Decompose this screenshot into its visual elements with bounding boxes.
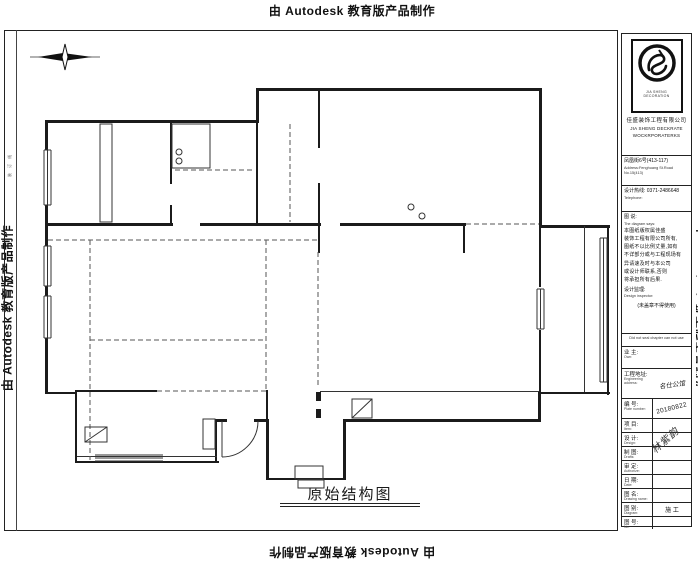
title-block-row: 图 别:Diagram:施 工 — [622, 503, 691, 517]
diagram-note-line: 不详部分或与工程现场有 — [624, 251, 689, 259]
row-value: 施 工 — [652, 503, 691, 516]
drawing-title: 原始结构图 — [270, 483, 430, 504]
title-block-inner: JIA SHENG DECORATION 佳盛装饰工程有限公司 JIA SHEN… — [621, 33, 692, 527]
row-label: 日 期:Date: — [622, 475, 652, 488]
seal-note-en: Did not seal chapter can not use — [622, 334, 691, 347]
row-label: 审 定:Authorize: — [622, 461, 652, 474]
hatch-shafts — [85, 399, 372, 442]
company-emblem: JIA SHENG DECORATION — [631, 39, 683, 113]
company-logo-icon — [635, 41, 679, 87]
title-underline — [280, 503, 420, 504]
row-label-en: Plate number: — [624, 408, 652, 412]
diagram-note-line: 装饰工程有限公司所有, — [624, 235, 689, 243]
title-block-row: 图 号:No: — [622, 517, 691, 529]
row-label-en: Drawing name: — [624, 498, 652, 502]
address-en: Address:Fenghuang St.Road No.15(413) — [624, 166, 689, 177]
floor-plan — [0, 0, 700, 560]
row-label: 编 号:Plate number: — [622, 399, 652, 418]
row-label: 图 别:Diagram: — [622, 503, 652, 516]
row-label-en: Item: — [624, 428, 652, 432]
row-label: 业 主:Own: — [622, 347, 652, 368]
seal-note-cn: (未盖章不得使用) — [624, 302, 689, 309]
company-logo-section: JIA SHENG DECORATION 佳盛装饰工程有限公司 JIA SHEN… — [622, 34, 691, 156]
row-value-text: 名仕公馆 — [658, 377, 685, 391]
supervisor-label-en: Design inspector: — [624, 294, 689, 300]
diagram-notes: 本图纸版权属佳盛装饰工程有限公司所有,图纸不以比例丈量,如有不详部分或与工程现场… — [624, 227, 689, 284]
title-block-row: 审 定:Authorize: — [622, 461, 691, 475]
walls — [45, 88, 610, 480]
diagram-note-line: 图纸不以比例丈量,如有 — [624, 243, 689, 251]
company-name-en: JIA SHENG DECKRATE — [622, 126, 691, 131]
row-value — [652, 461, 691, 474]
row-label: 工程地址:Engineering address: — [622, 369, 652, 398]
row-value — [652, 489, 691, 502]
phone-cn: 设计热线: 0371-2486648 — [624, 188, 689, 196]
title-block: JIA SHENG DECORATION 佳盛装饰工程有限公司 JIA SHEN… — [617, 30, 696, 531]
title-block-row: 图 名:Drawing name: — [622, 489, 691, 503]
title-block-row: 工程地址:Engineering address:名仕公馆 — [622, 369, 691, 399]
title-block-row: 业 主:Own: — [622, 347, 691, 369]
emblem-caption: JIA SHENG DECORATION — [633, 90, 681, 98]
supervisor-label-cn: 设计监理: — [624, 287, 689, 295]
row-value — [652, 475, 691, 488]
demolition-dashed-lines — [48, 124, 539, 460]
address-cn: 凤凰街6号(413-117) — [624, 158, 689, 166]
row-value: 20180822 — [652, 399, 691, 418]
diagram-note-line: 异请速及时与本公司 — [624, 260, 689, 268]
title-underline — [280, 506, 420, 507]
row-label-en: Engineering address: — [624, 378, 652, 386]
row-label-en: Diagram: — [624, 512, 652, 516]
row-value-text: 施 工 — [665, 505, 679, 514]
row-label-en: No: — [624, 526, 652, 530]
diagram-note-line: 或设计师联系,否则 — [624, 268, 689, 276]
entry-door — [222, 421, 258, 457]
diagram-says-label-cn: 图 说: — [624, 214, 689, 222]
row-label: 图 号:No: — [622, 517, 652, 529]
columns — [176, 149, 425, 219]
thin-lines — [77, 124, 585, 488]
title-block-row: 项 目:Item: — [622, 419, 691, 433]
phone-section: 设计热线: 0371-2486648 Telephone: — [622, 186, 691, 212]
company-name-en: WOCKRPORATERKS — [622, 133, 691, 138]
row-value-text: 20180822 — [656, 401, 688, 415]
row-value — [652, 517, 691, 529]
row-label-en: Drafts: — [624, 456, 652, 460]
row-label: 制 图:Drafts: — [622, 447, 652, 460]
row-value — [652, 347, 691, 368]
title-block-row: 日 期:Date: — [622, 475, 691, 489]
row-label-en: Date: — [624, 484, 652, 488]
row-label-en: Own: — [624, 356, 652, 360]
windows — [44, 150, 608, 461]
title-block-row: 编 号:Plate number:20180822 — [622, 399, 691, 419]
diagram-note-line: 将承担所有后果. — [624, 276, 689, 284]
north-compass-icon — [30, 44, 100, 70]
diagram-note-line: 本图纸版权属佳盛 — [624, 227, 689, 235]
row-label: 项 目:Item: — [622, 419, 652, 432]
row-label-en: Authorize: — [624, 470, 652, 474]
address-section: 凤凰街6号(413-117) Address:Fenghuang St.Road… — [622, 156, 691, 186]
phone-en: Telephone: — [624, 196, 689, 202]
row-value: 名仕公馆 — [652, 369, 691, 398]
company-name-cn: 佳盛装饰工程有限公司 — [622, 116, 691, 124]
row-label: 图 名:Drawing name: — [622, 489, 652, 502]
diagram-notes-section: 图 说: The diagram says: 本图纸版权属佳盛装饰工程有限公司所… — [622, 212, 691, 334]
